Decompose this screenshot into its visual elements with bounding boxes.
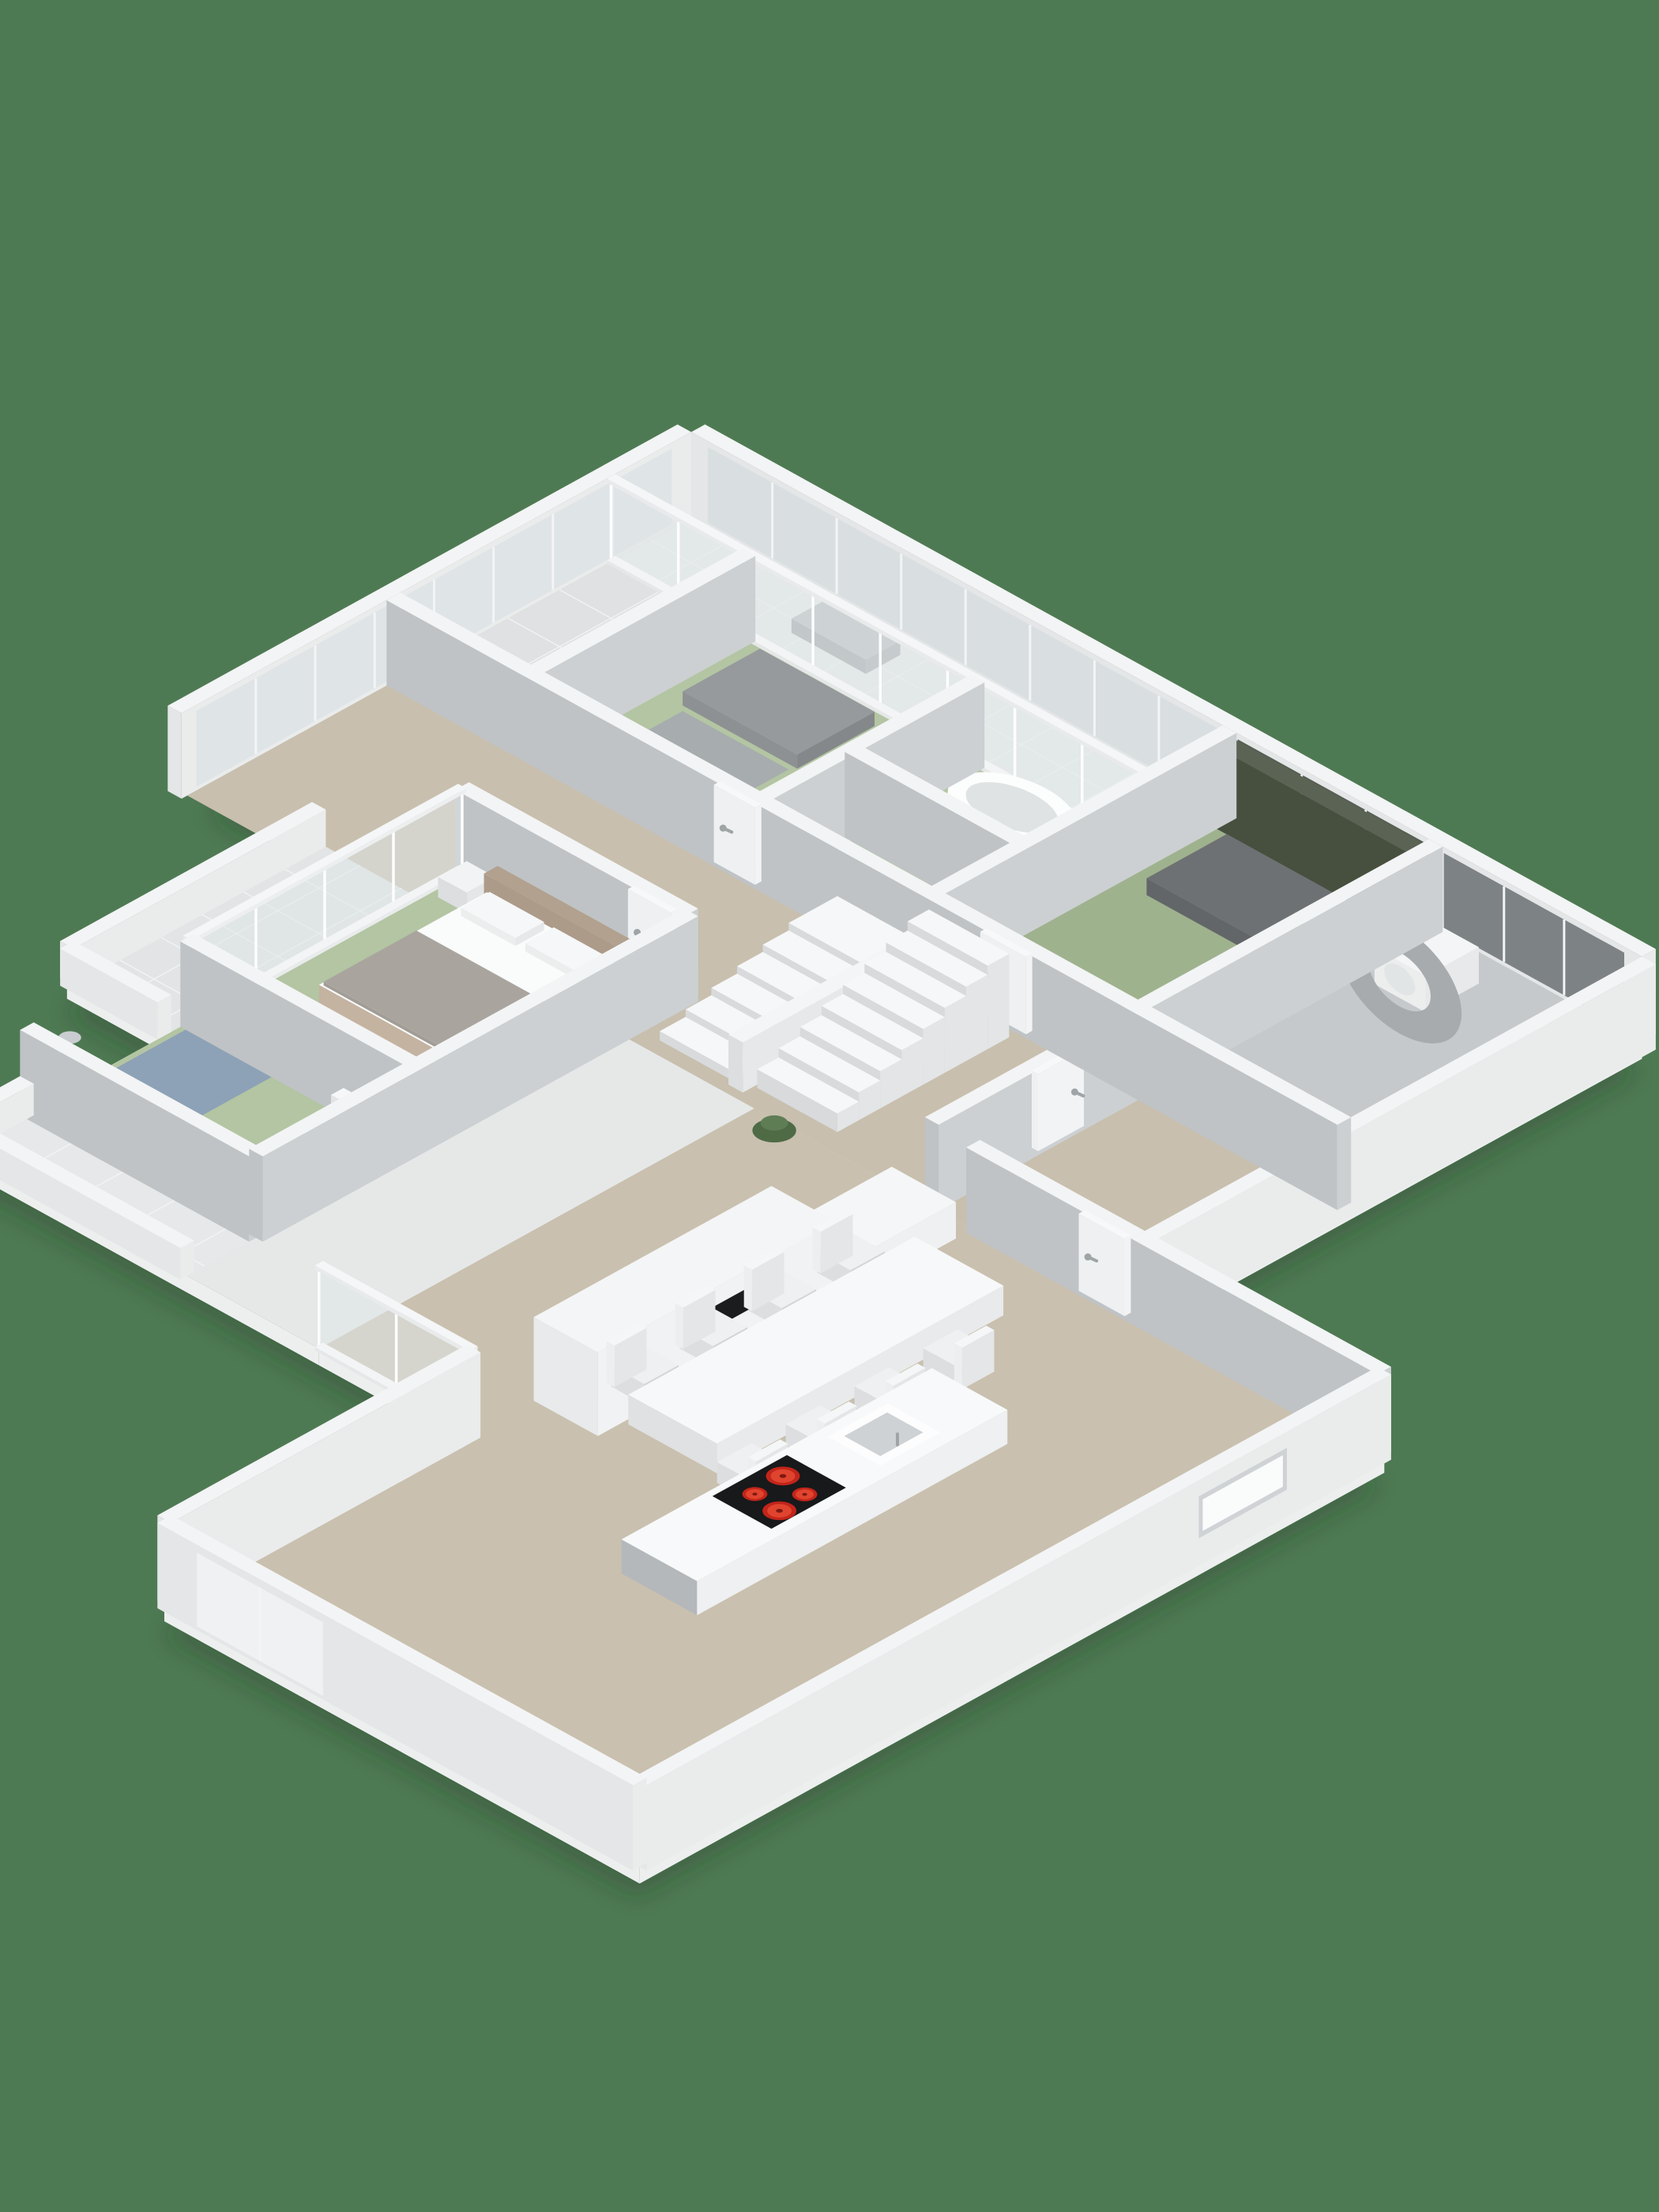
dining-chair-nw-2-back-left [744, 1266, 752, 1311]
floorplan-3d-render [0, 0, 1659, 2212]
washing-machine-door [1384, 957, 1415, 1002]
wall-master-suite-east-left [249, 1149, 262, 1242]
door-bedroom-3-right [1026, 954, 1033, 1034]
wall-north-rooms-hall-right [1337, 1117, 1351, 1210]
dining-chair-nw-1-back-left [813, 1228, 821, 1273]
floorplan-stage [0, 0, 1659, 2212]
terrace-rail-southwest-right [157, 995, 171, 1040]
facade-northwest-left [167, 705, 182, 799]
door-utility-corridor-left [1032, 1070, 1038, 1151]
facade-south-right [633, 1777, 646, 1871]
dining-chair-nw-3-back-left [675, 1303, 683, 1349]
staircase-divider-left [728, 1035, 743, 1093]
dining-chair-nw-4-back-left [607, 1341, 615, 1387]
door-living-northeast-right [1125, 1236, 1131, 1316]
door-bathroom-north-right [755, 804, 762, 885]
